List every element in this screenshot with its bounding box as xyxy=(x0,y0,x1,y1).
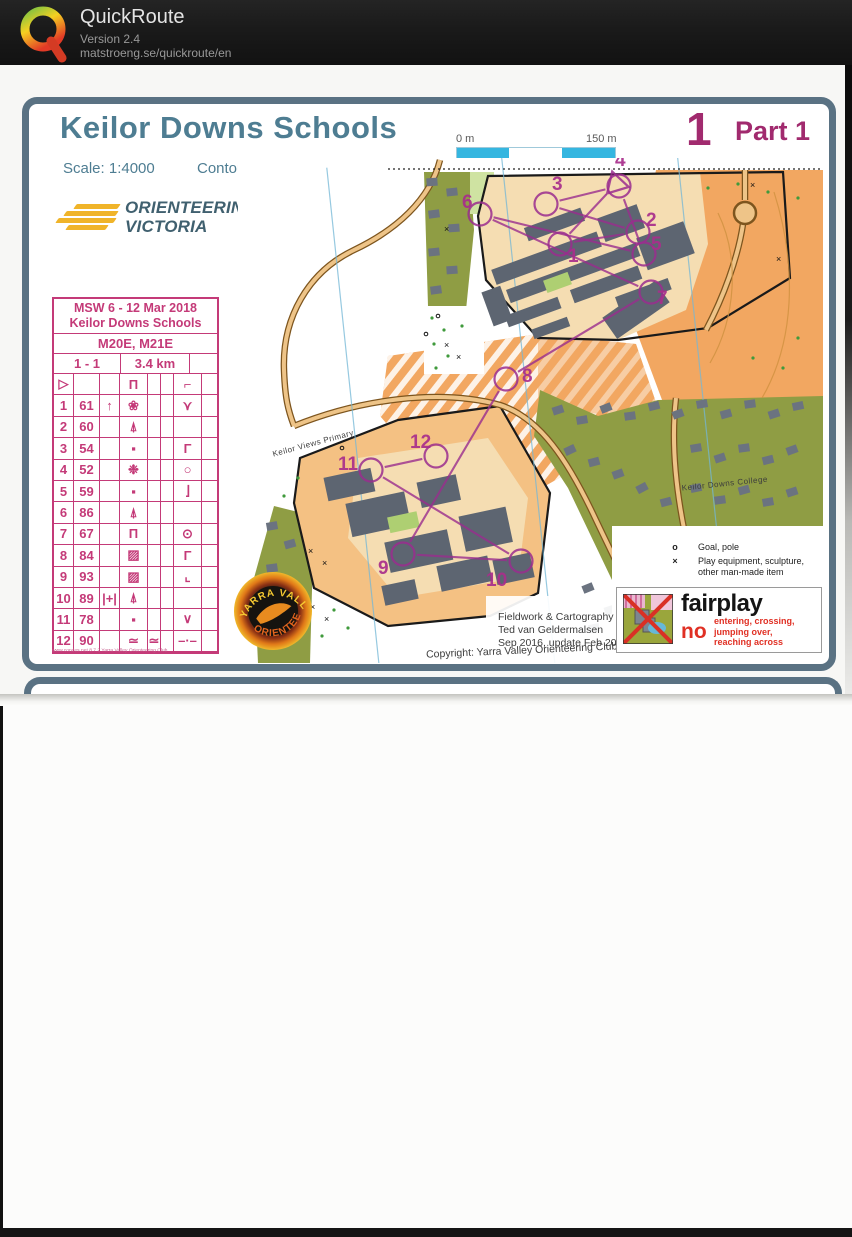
card-cell: ⌞ xyxy=(173,567,202,588)
card-cell xyxy=(148,523,161,545)
card-footer: www.condes.net 8.7.2 Yarra Valley Orient… xyxy=(52,648,167,653)
card-cell xyxy=(148,481,161,502)
control-description-card: MSW 6 - 12 Mar 2018 Keilor Downs Schools… xyxy=(52,297,219,654)
card-cell xyxy=(173,587,202,609)
card-cell: ▷ xyxy=(54,374,74,395)
fairplay-rules: entering, crossing, jumping over, reachi… xyxy=(714,616,795,648)
control-number: 6 xyxy=(462,192,473,213)
card-cell: 93 xyxy=(74,567,100,588)
card-cell xyxy=(148,395,161,416)
control-number: 2 xyxy=(646,210,657,231)
page-edge-shadow xyxy=(845,65,852,700)
card-cell: ○ xyxy=(173,459,202,481)
svg-text:×: × xyxy=(444,224,449,234)
card-cell xyxy=(202,609,217,630)
app-url-link[interactable]: matstroeng.se/quickroute/en xyxy=(80,46,231,60)
card-event-header: MSW 6 - 12 Mar 2018 Keilor Downs Schools xyxy=(54,299,217,334)
card-cell: ❉ xyxy=(119,459,148,481)
card-cell: ⍋ xyxy=(119,417,148,438)
quickroute-logo-icon xyxy=(16,2,74,64)
card-cell: 52 xyxy=(74,459,100,481)
card-cell: 61 xyxy=(74,395,100,416)
card-course-row: 1 - 1 3.4 km xyxy=(54,354,217,374)
card-cell xyxy=(202,481,217,502)
card-cell xyxy=(148,502,161,523)
yarra-valley-orienteers-logo: YARRA VALLEY ORIENTEERS xyxy=(226,564,321,659)
control-number: 11 xyxy=(338,454,359,475)
card-cell: ↑ xyxy=(100,395,120,416)
card-cell: ▪ xyxy=(119,609,148,630)
card-cell xyxy=(202,459,217,481)
card-cell xyxy=(202,417,217,438)
card-cell: 84 xyxy=(74,545,100,566)
card-cell: 2 xyxy=(54,417,74,438)
card-cell: 4 xyxy=(54,459,74,481)
ov-logo-stripes-icon xyxy=(53,204,121,234)
card-cell xyxy=(148,587,161,609)
card-cell: Γ xyxy=(173,545,202,566)
card-cell xyxy=(148,609,161,630)
card-cell xyxy=(100,609,120,630)
card-cell xyxy=(148,545,161,566)
fairplay-no-entry-icon xyxy=(623,594,673,644)
card-cell xyxy=(173,502,202,523)
card-cell xyxy=(100,523,120,545)
svg-text:×: × xyxy=(776,254,781,264)
card-cell: 8 xyxy=(54,545,74,566)
control-number: 8 xyxy=(522,366,533,387)
control-number: 7 xyxy=(657,288,668,309)
card-cell xyxy=(202,587,217,609)
card-cell: ▨ xyxy=(119,567,148,588)
card-cell xyxy=(202,502,217,523)
map-title: Keilor Downs Schools xyxy=(60,110,397,146)
card-cell xyxy=(202,438,217,459)
card-cell xyxy=(100,481,120,502)
card-cell xyxy=(148,459,161,481)
card-cell: Π xyxy=(119,374,148,395)
card-cell: 89 xyxy=(74,587,100,609)
roundabout xyxy=(734,202,756,224)
card-cell: 60 xyxy=(74,417,100,438)
card-cell: ⍋ xyxy=(119,587,148,609)
control-number: 5 xyxy=(651,234,662,255)
card-cell: 7 xyxy=(54,523,74,545)
control-number: 3 xyxy=(552,174,563,195)
part-label: Part 1 xyxy=(735,116,810,147)
scalebar-end-label: 150 m xyxy=(586,133,617,145)
card-cell: 6 xyxy=(54,502,74,523)
app-header: QuickRoute Version 2.4 matstroeng.se/qui… xyxy=(0,0,852,64)
card-cell: 54 xyxy=(74,438,100,459)
svg-text:×: × xyxy=(750,180,755,190)
card-cell xyxy=(100,545,120,566)
card-cell: ❀ xyxy=(119,395,148,416)
card-cell: 3 xyxy=(54,438,74,459)
card-cell: ⍋ xyxy=(119,502,148,523)
scanned-page-bottom xyxy=(3,706,852,1228)
card-cell: 5 xyxy=(54,481,74,502)
course-number: 1 xyxy=(686,102,712,156)
card-cell xyxy=(173,417,202,438)
card-cell: 59 xyxy=(74,481,100,502)
card-cell: ▨ xyxy=(119,545,148,566)
svg-text:×: × xyxy=(444,340,449,350)
card-cell: 86 xyxy=(74,502,100,523)
card-cell xyxy=(148,438,161,459)
control-number: 1 xyxy=(568,246,579,267)
card-cell: 67 xyxy=(74,523,100,545)
card-symbol-grid: ▷Π⌐161↑❀⋎260⍋354▪Γ452❉○559▪⌋686⍋767Π⊙884… xyxy=(54,374,217,652)
paper-fold xyxy=(0,694,852,706)
app-title: QuickRoute xyxy=(80,6,185,29)
card-cell: 78 xyxy=(74,609,100,630)
card-cell xyxy=(202,545,217,566)
card-cell: ▪ xyxy=(119,438,148,459)
card-cell xyxy=(148,417,161,438)
card-cell: |+| xyxy=(100,587,120,609)
card-cell: 10 xyxy=(54,587,74,609)
scalebar-start-label: 0 m xyxy=(456,133,474,145)
card-cell: Π xyxy=(119,523,148,545)
card-cell: 11 xyxy=(54,609,74,630)
play-equipment-label: Play equipment, sculpture, other man-mad… xyxy=(698,556,804,578)
card-cell xyxy=(202,567,217,588)
fairplay-no: no xyxy=(681,620,707,644)
card-cell xyxy=(74,374,100,395)
card-cell xyxy=(148,374,161,395)
control-number: 10 xyxy=(486,570,507,591)
card-cell xyxy=(202,631,217,652)
card-cell: –·– xyxy=(173,631,202,652)
card-cell xyxy=(100,567,120,588)
goal-label: Goal, pole xyxy=(698,542,739,553)
quickroute-window: QuickRoute Version 2.4 matstroeng.se/qui… xyxy=(0,0,852,1237)
card-classes: M20E, M21E xyxy=(54,334,217,354)
card-cell xyxy=(100,459,120,481)
svg-text:×: × xyxy=(308,546,313,556)
goal-symbol: o xyxy=(668,542,682,553)
svg-text:×: × xyxy=(324,614,329,624)
fairplay-notice: fairplay no entering, crossing, jumping … xyxy=(616,587,822,653)
card-cell xyxy=(100,438,120,459)
card-cell: 9 xyxy=(54,567,74,588)
card-cell xyxy=(202,523,217,545)
control-number: 4 xyxy=(615,158,626,171)
card-cell: ∨ xyxy=(173,609,202,630)
map-legend: o Goal, pole × Play equipment, sculpture… xyxy=(668,542,804,581)
control-number: 9 xyxy=(378,558,389,579)
card-cell: ▪ xyxy=(119,481,148,502)
control-number: 12 xyxy=(410,432,431,453)
card-cell xyxy=(202,395,217,416)
map-scale-text: Scale: 1:4000 xyxy=(63,160,155,177)
card-cell: 1 xyxy=(54,395,74,416)
svg-text:×: × xyxy=(322,558,327,568)
card-cell xyxy=(202,374,217,395)
card-cell: ⌐ xyxy=(173,374,202,395)
cross-symbol: × xyxy=(668,556,682,578)
card-cell: ⋎ xyxy=(173,395,202,416)
svg-text:×: × xyxy=(456,352,461,362)
fairplay-title: fairplay xyxy=(681,590,762,618)
card-cell xyxy=(100,502,120,523)
card-cell: ⊙ xyxy=(173,523,202,545)
orienteering-victoria-logo: ORIENTEERING VICTORIA xyxy=(53,198,243,246)
card-cell: ⌋ xyxy=(173,481,202,502)
card-cell xyxy=(148,567,161,588)
card-cell xyxy=(100,374,120,395)
window-bottom-edge xyxy=(0,1228,852,1237)
card-cell xyxy=(100,417,120,438)
card-cell: Γ xyxy=(173,438,202,459)
app-version: Version 2.4 xyxy=(80,32,140,46)
